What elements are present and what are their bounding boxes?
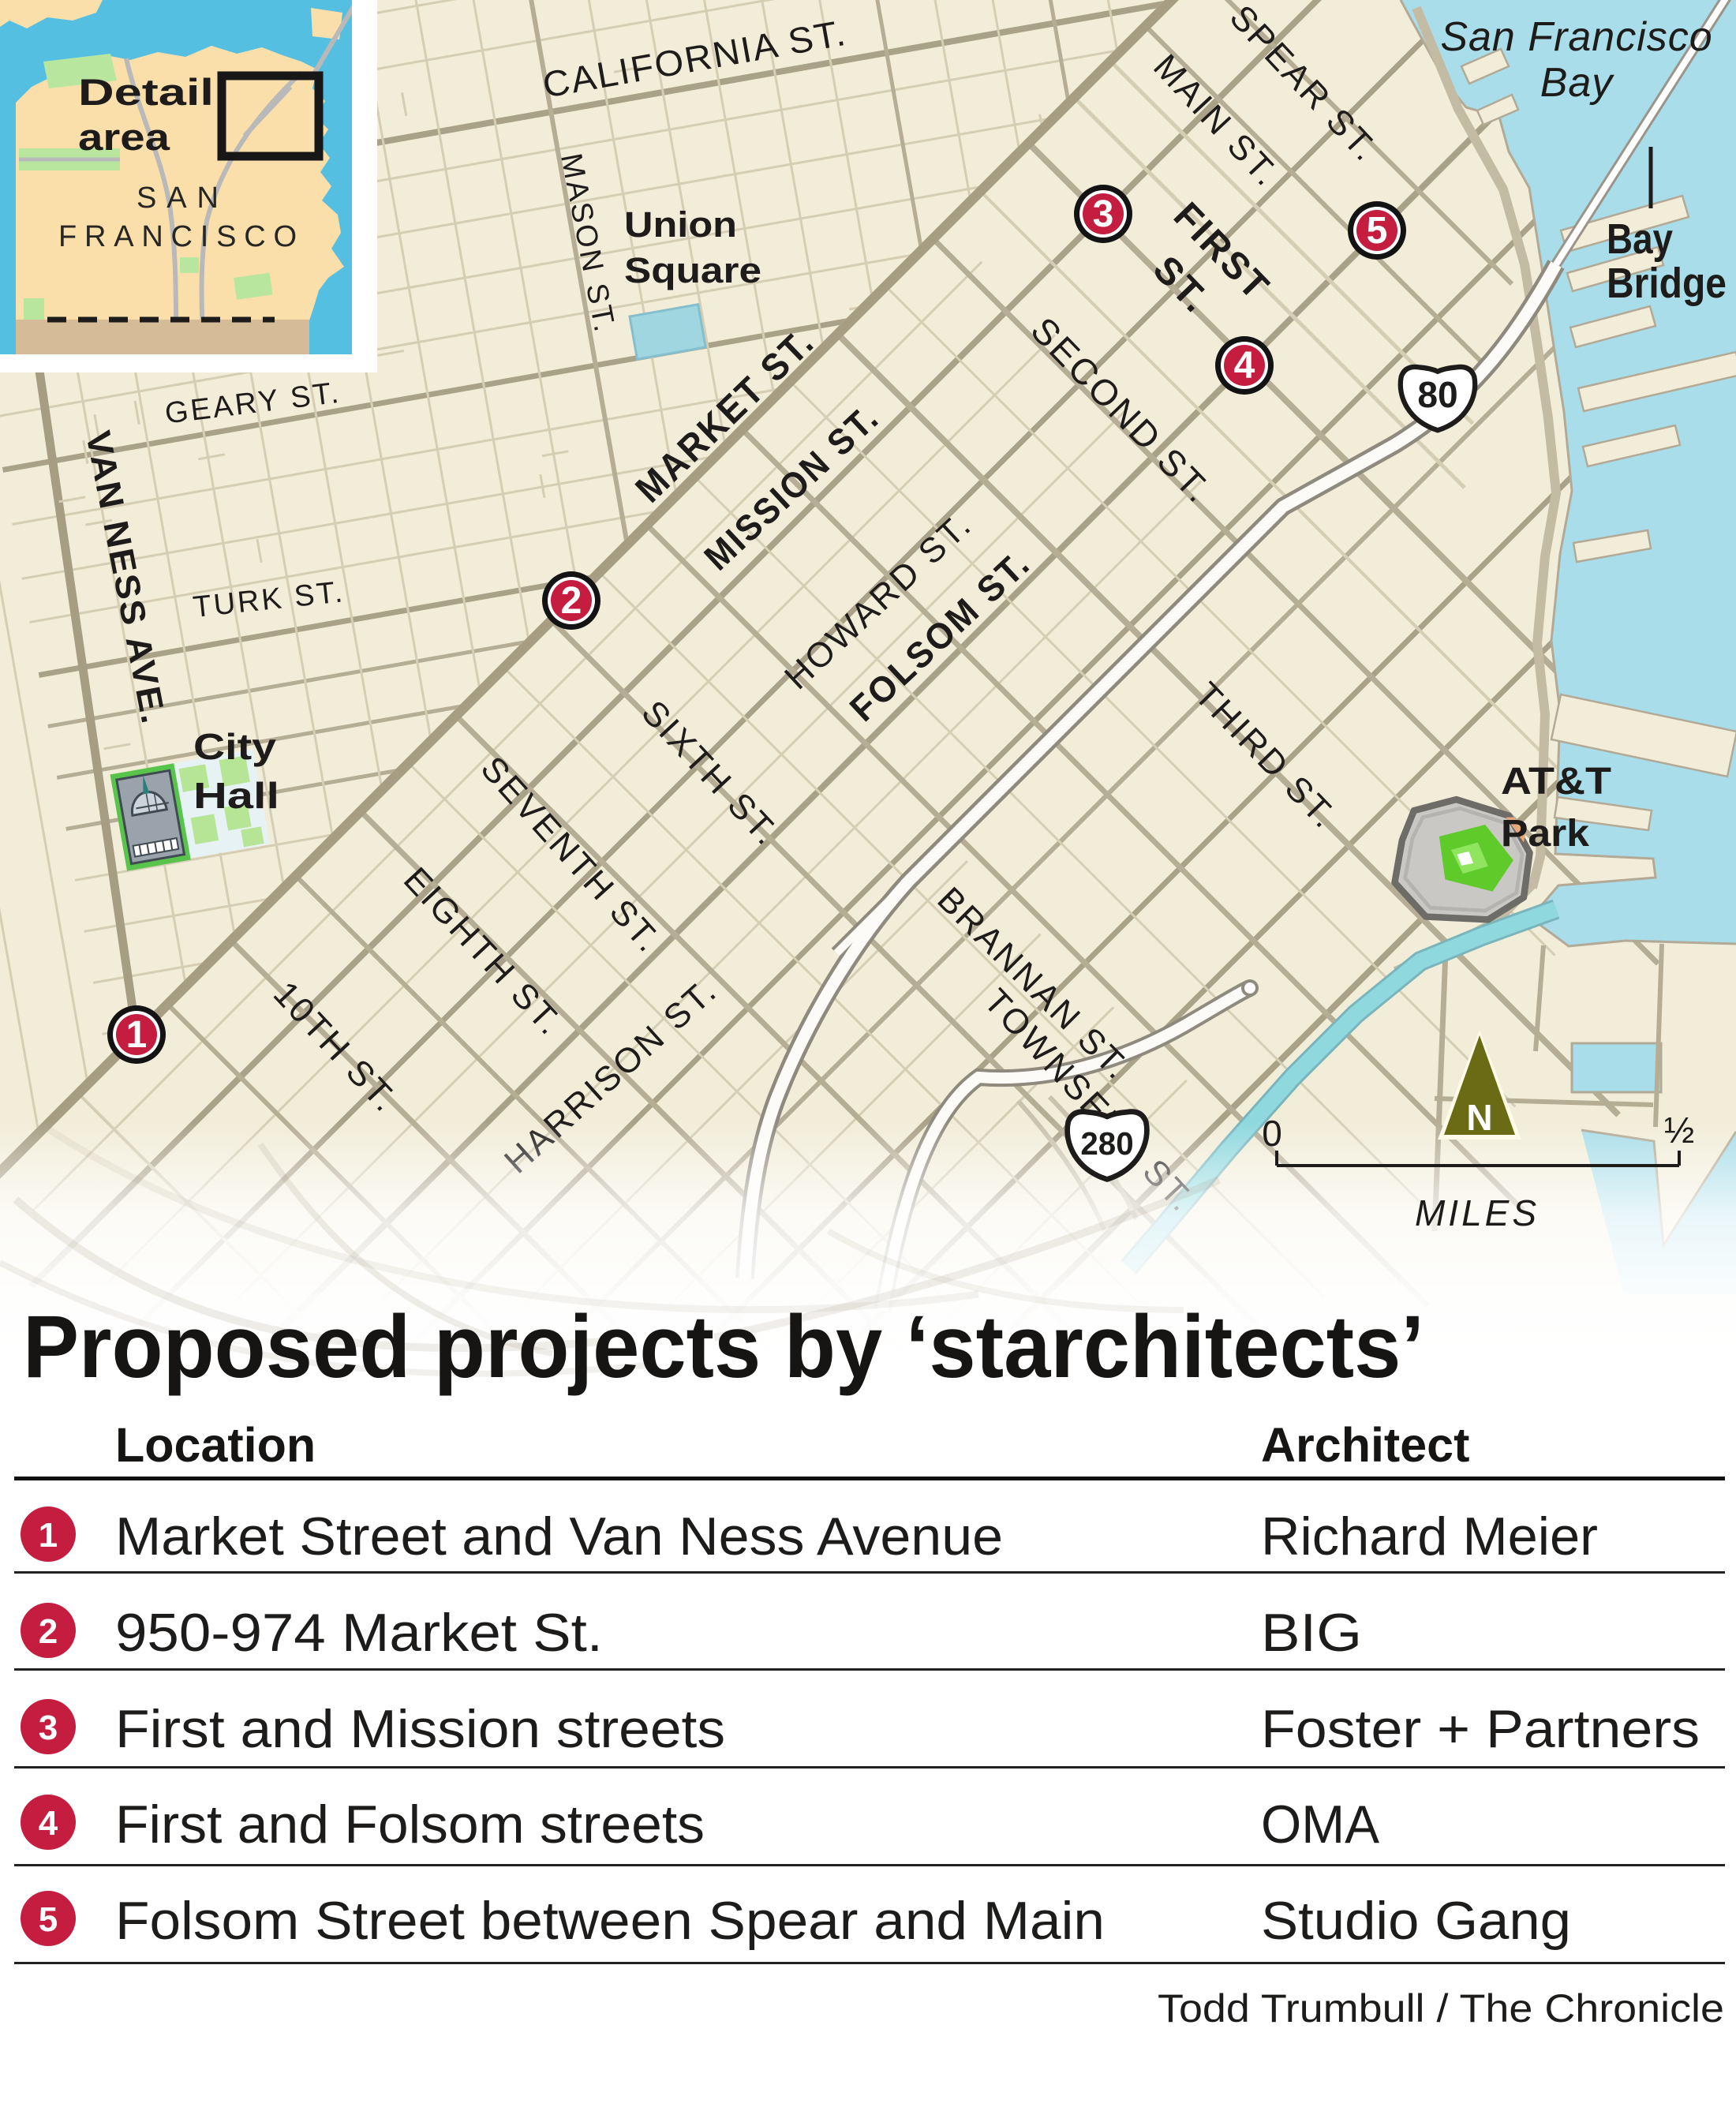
svg-text:Bay: Bay: [1607, 215, 1673, 263]
svg-text:BIG: BIG: [1261, 1603, 1362, 1663]
svg-text:950-974 Market St.: 950-974 Market St.: [115, 1603, 603, 1663]
svg-text:80: 80: [1417, 374, 1457, 415]
svg-text:1: 1: [39, 1516, 58, 1555]
svg-text:Bay: Bay: [1540, 60, 1615, 106]
svg-text:Square: Square: [624, 250, 761, 290]
svg-text:Hall: Hall: [193, 775, 279, 816]
svg-text:Location: Location: [115, 1418, 316, 1472]
svg-text:5: 5: [1367, 210, 1388, 252]
svg-text:2: 2: [561, 580, 582, 622]
svg-text:City: City: [193, 726, 276, 767]
svg-text:AT&T: AT&T: [1501, 761, 1611, 803]
svg-text:5: 5: [39, 1900, 58, 1939]
svg-text:280: 280: [1080, 1125, 1133, 1162]
svg-text:1: 1: [126, 1014, 148, 1056]
svg-text:Studio Gang: Studio Gang: [1261, 1891, 1571, 1951]
svg-text:Market Street and Van Ness Ave: Market Street and Van Ness Avenue: [115, 1507, 1003, 1566]
svg-text:OMA: OMA: [1261, 1795, 1380, 1855]
svg-text:FRANCISCO: FRANCISCO: [58, 220, 297, 253]
svg-text:2: 2: [39, 1612, 58, 1651]
svg-text:4: 4: [39, 1804, 58, 1843]
svg-text:½: ½: [1664, 1110, 1694, 1151]
svg-text:Detail: Detail: [78, 71, 214, 113]
svg-text:N: N: [1466, 1097, 1492, 1138]
svg-text:Proposed projects by ‘starchit: Proposed projects by ‘starchitects’: [23, 1297, 1424, 1396]
svg-text:Park: Park: [1501, 813, 1589, 855]
svg-text:San Francisco: San Francisco: [1440, 14, 1712, 60]
svg-text:Bridge: Bridge: [1607, 260, 1727, 307]
svg-text:area: area: [78, 116, 170, 158]
svg-text:MILES: MILES: [1415, 1192, 1540, 1233]
svg-text:0: 0: [1262, 1113, 1282, 1154]
svg-text:First and Mission streets: First and Mission streets: [115, 1699, 725, 1759]
svg-text:Folsom Street between Spear an: Folsom Street between Spear and Main: [115, 1891, 1105, 1951]
svg-text:4: 4: [1234, 345, 1255, 387]
svg-text:Richard Meier: Richard Meier: [1261, 1507, 1598, 1566]
svg-text:3: 3: [39, 1709, 58, 1747]
svg-text:Todd Trumbull / The Chronicle: Todd Trumbull / The Chronicle: [1158, 1986, 1724, 2031]
svg-text:Union: Union: [624, 204, 737, 245]
svg-text:Foster + Partners: Foster + Partners: [1261, 1699, 1700, 1759]
svg-text:3: 3: [1093, 193, 1114, 235]
svg-text:Architect: Architect: [1261, 1418, 1469, 1472]
svg-text:SAN: SAN: [137, 182, 219, 215]
svg-text:First and Folsom streets: First and Folsom streets: [115, 1795, 705, 1855]
